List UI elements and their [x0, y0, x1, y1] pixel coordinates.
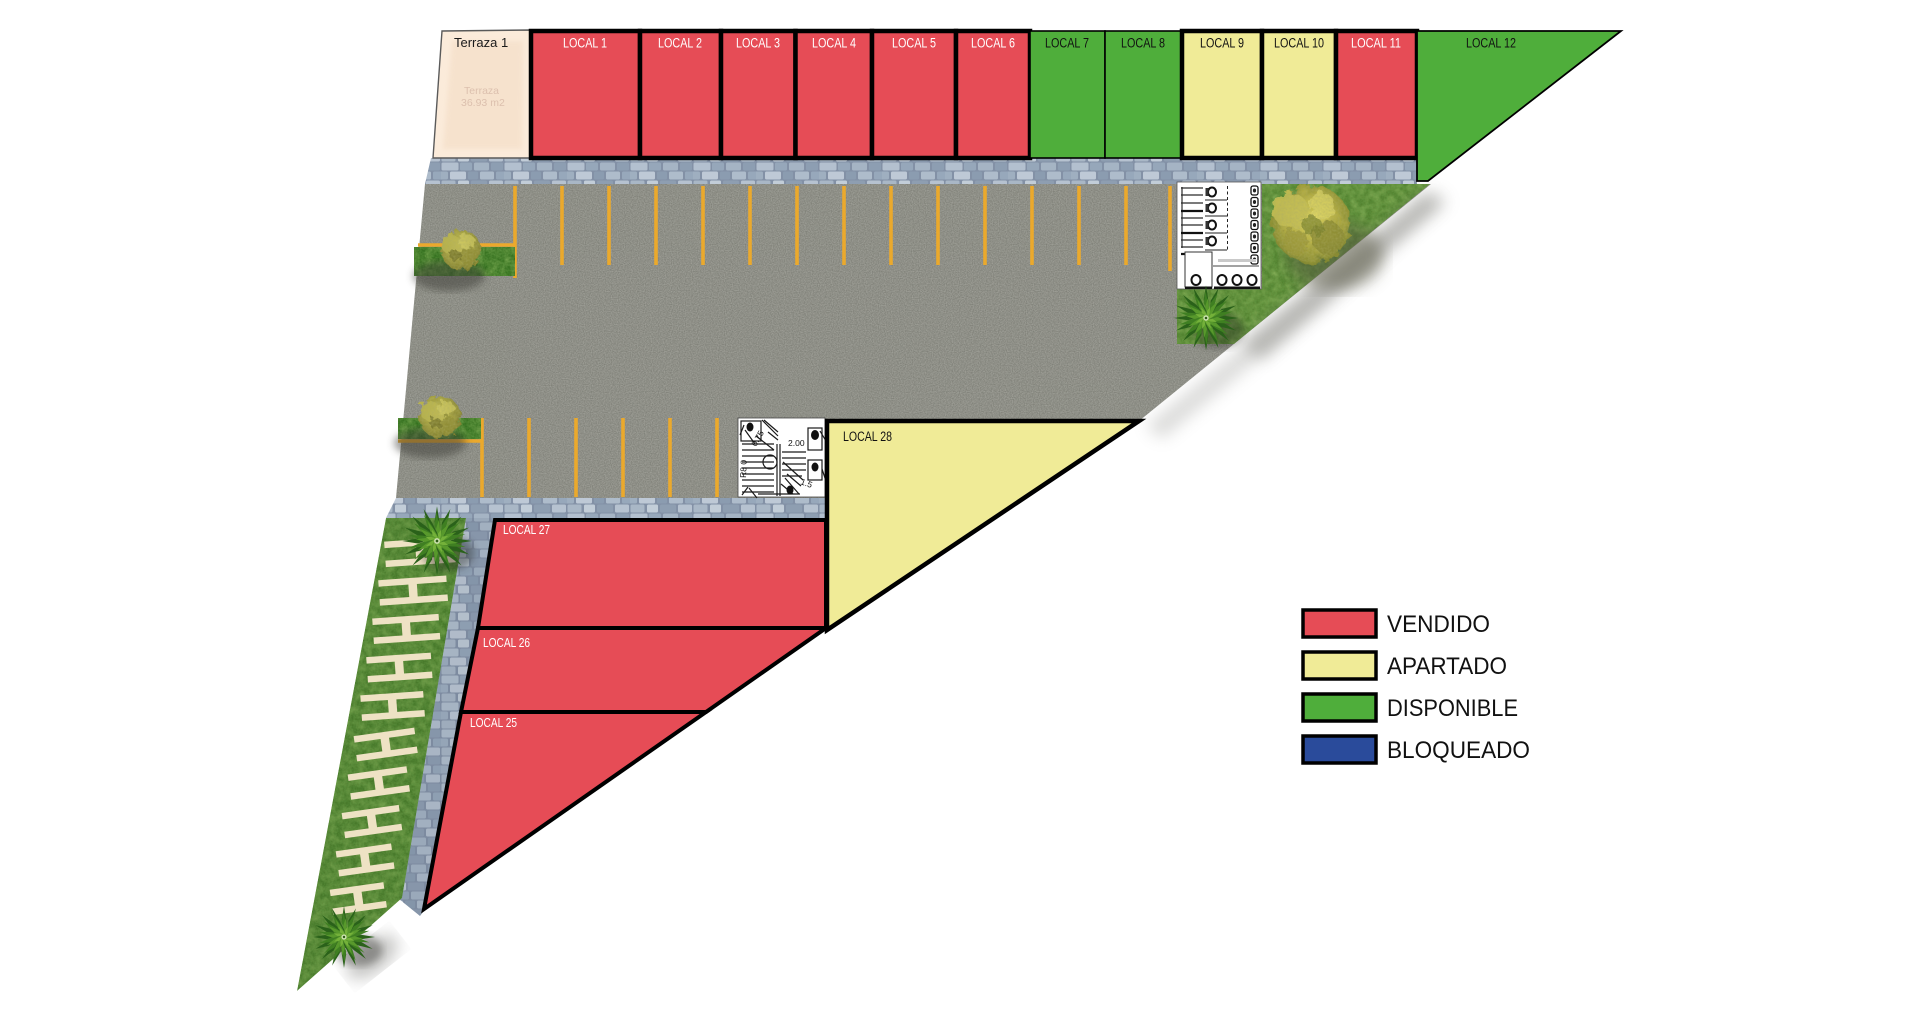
svg-text:LOCAL 27: LOCAL 27 [503, 523, 550, 537]
svg-text:36.93 m2: 36.93 m2 [461, 97, 505, 109]
svg-text:LOCAL 5: LOCAL 5 [892, 36, 936, 51]
svg-text:LOCAL 7: LOCAL 7 [1045, 36, 1089, 51]
svg-text:LOCAL 2: LOCAL 2 [658, 36, 702, 51]
svg-text:LOCAL 1: LOCAL 1 [563, 36, 607, 51]
svg-text:2.00: 2.00 [788, 438, 805, 448]
svg-text:LOCAL 3: LOCAL 3 [736, 36, 780, 51]
svg-text:LOCAL 9: LOCAL 9 [1200, 36, 1244, 51]
svg-text:LOCAL 28: LOCAL 28 [843, 429, 892, 444]
svg-text:APARTADO: APARTADO [1387, 653, 1507, 680]
svg-text:LOCAL 26: LOCAL 26 [483, 636, 530, 650]
svg-text:Terraza 1: Terraza 1 [454, 35, 508, 50]
svg-text:LOCAL 8: LOCAL 8 [1121, 36, 1165, 51]
svg-text:LOCAL 11: LOCAL 11 [1351, 36, 1401, 51]
svg-text:LOCAL 4: LOCAL 4 [812, 36, 856, 51]
svg-text:LOCAL 10: LOCAL 10 [1274, 36, 1324, 51]
svg-text:LOCAL 12: LOCAL 12 [1466, 36, 1516, 51]
svg-text:R8 0: R8 0 [738, 460, 749, 479]
svg-text:BLOQUEADO: BLOQUEADO [1387, 737, 1530, 764]
svg-text:DISPONIBLE: DISPONIBLE [1387, 695, 1518, 722]
svg-text:Terraza: Terraza [464, 85, 499, 97]
svg-text:VENDIDO: VENDIDO [1387, 611, 1490, 638]
svg-text:LOCAL 6: LOCAL 6 [971, 36, 1015, 51]
svg-text:LOCAL 25: LOCAL 25 [470, 716, 517, 730]
